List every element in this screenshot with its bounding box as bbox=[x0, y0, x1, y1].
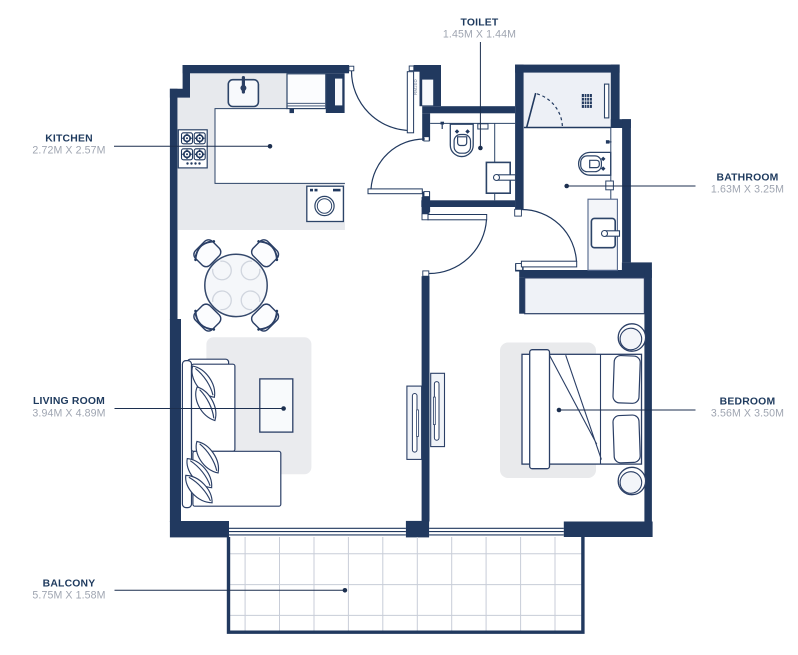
svg-text:5.75M X 1.58M: 5.75M X 1.58M bbox=[32, 590, 105, 602]
svg-text:2.72M X 2.57M: 2.72M X 2.57M bbox=[32, 145, 105, 157]
svg-text:RM20D: RM20D bbox=[413, 79, 418, 95]
svg-text:BEDROOM: BEDROOM bbox=[720, 397, 776, 408]
svg-text:1.63M X 3.25M: 1.63M X 3.25M bbox=[711, 184, 784, 196]
svg-text:LIVING ROOM: LIVING ROOM bbox=[33, 396, 105, 407]
svg-text:1.45M X 1.44M: 1.45M X 1.44M bbox=[443, 29, 516, 41]
svg-text:TOILET: TOILET bbox=[461, 18, 499, 29]
svg-text:3.94M X 4.89M: 3.94M X 4.89M bbox=[32, 408, 105, 420]
svg-text:BALCONY: BALCONY bbox=[43, 579, 96, 590]
svg-text:3.56M X 3.50M: 3.56M X 3.50M bbox=[711, 408, 784, 420]
svg-text:BATHROOM: BATHROOM bbox=[716, 173, 778, 184]
svg-text:KITCHEN: KITCHEN bbox=[45, 134, 93, 145]
